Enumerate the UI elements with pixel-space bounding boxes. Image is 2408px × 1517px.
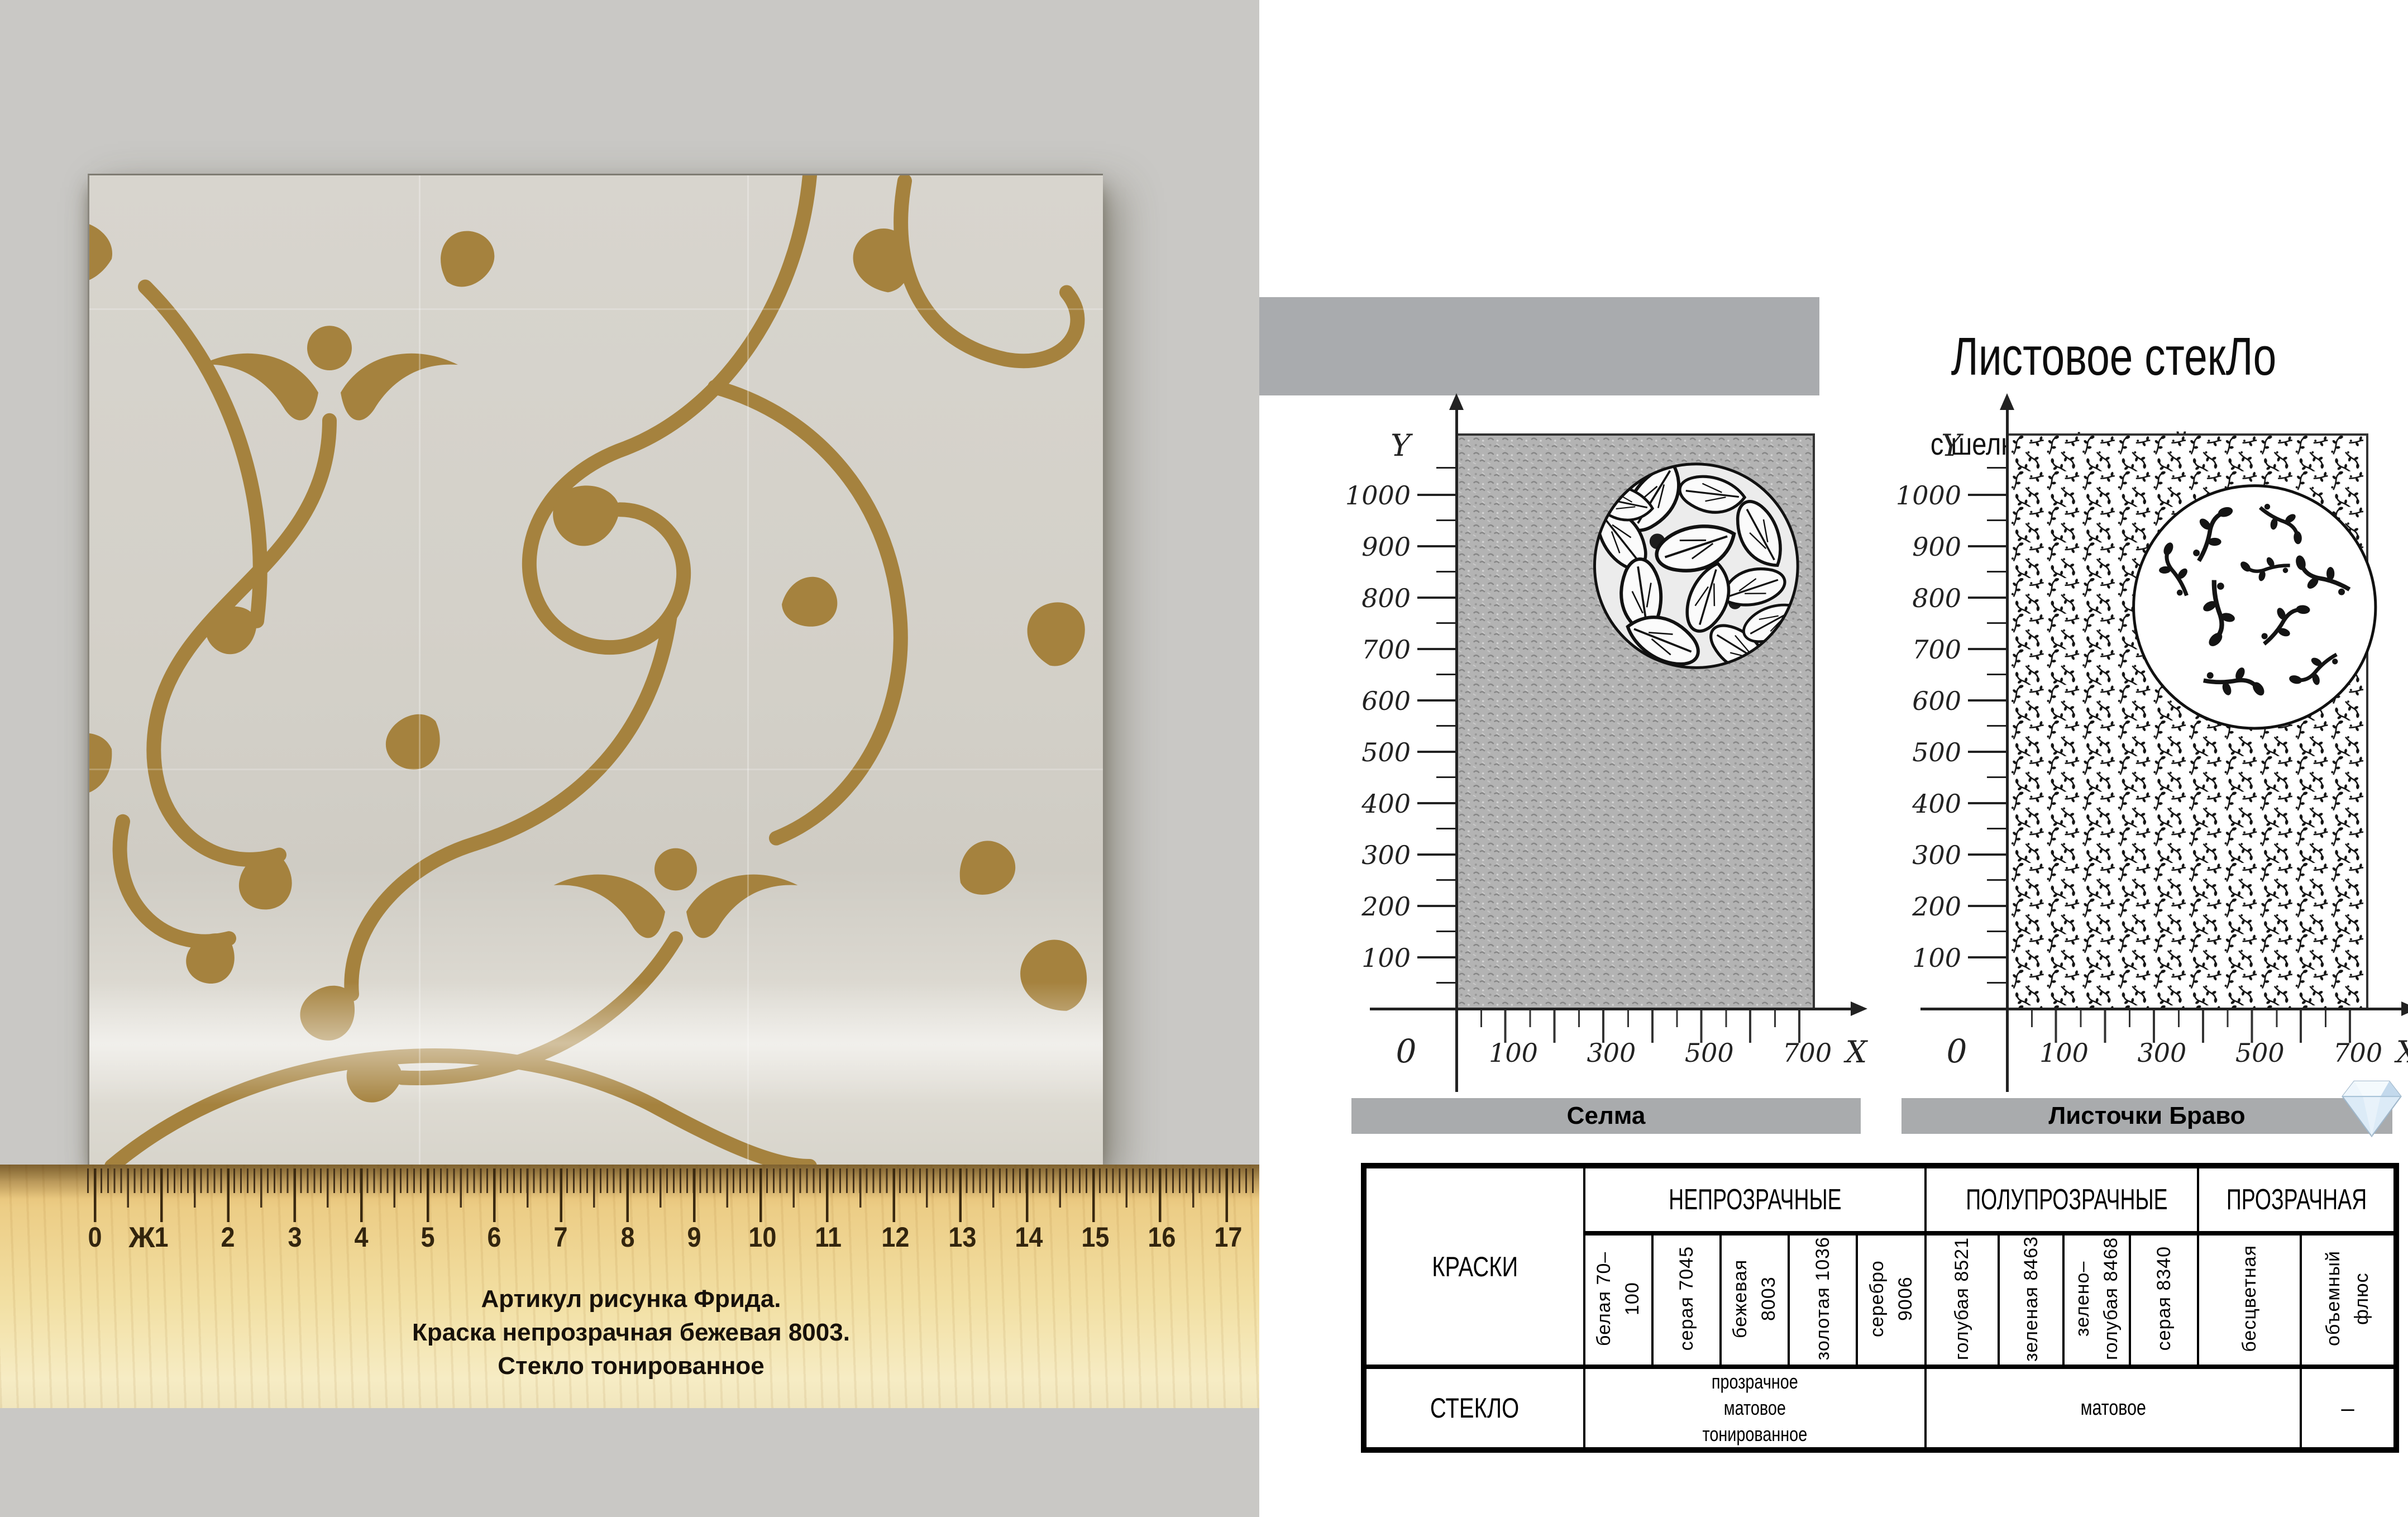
x-axis-label: X [1834, 1034, 1879, 1070]
row-header-glass: СТЕКЛО [1364, 1367, 1584, 1450]
ruler-number: 0 [83, 1221, 107, 1253]
glass-seam [89, 308, 1103, 310]
paint-column: серая 8340 [2130, 1233, 2198, 1367]
y-tick: 600 [1345, 686, 1462, 737]
ruler-number: 13 [948, 1221, 972, 1253]
pattern-name-bar: Селма [1351, 1098, 1861, 1134]
origin-label: 0 [1384, 1032, 1428, 1070]
ruler-number: 6 [482, 1221, 507, 1253]
paints-glass-table: КРАСКИ НЕПРОЗРАЧНЫЕ ПОЛУПРОЗРАЧНЫЕ ПРОЗР… [1361, 1163, 2399, 1453]
header-gray-bar [1259, 297, 1819, 395]
ruler-cm-ticks [94, 1168, 1236, 1222]
y-tick: 500 [1895, 737, 2013, 789]
ruler-number: 10 [748, 1221, 772, 1253]
diamond-icon [2337, 1074, 2407, 1142]
y-tick: 900 [1895, 532, 2013, 583]
y-tick: 300 [1345, 840, 1462, 891]
y-axis [2006, 408, 2009, 1092]
y-tick: 200 [1895, 891, 2013, 943]
ruler-maker-mark: Ж [124, 1221, 160, 1254]
glass-options-semi: матовое [1926, 1367, 2301, 1450]
y-tick: 500 [1345, 737, 1462, 789]
dimension-diagram-selma: Y X 0 1000 900 800 [1345, 391, 1858, 1151]
y-tick: 300 [1895, 840, 2013, 891]
sample-photo-panel: 01234567891011121314151617 Ж Артикул рис… [0, 0, 1259, 1517]
ruler-number: 12 [882, 1221, 906, 1253]
ruler-number: 8 [615, 1221, 639, 1253]
ruler-number: 16 [1148, 1221, 1172, 1253]
caption-line: Артикул рисунка Фрида. [335, 1282, 927, 1316]
caption-line: Краска непрозрачная бежевая 8003. [335, 1316, 927, 1349]
y-axis-label: Y [1918, 428, 1985, 463]
ruler-number: 3 [283, 1221, 307, 1253]
paint-column: объемный флюс [2301, 1233, 2396, 1367]
paint-column: серая 7045 [1652, 1233, 1721, 1367]
paint-column: белая 70–100 [1584, 1233, 1652, 1367]
y-tick: 400 [1895, 789, 2013, 840]
paint-column: зеленая 8463 [1999, 1233, 2063, 1367]
ruler-number: 4 [349, 1221, 373, 1253]
paint-column: бесцветная [2198, 1233, 2301, 1367]
y-tick: 100 [1345, 943, 1462, 994]
group-header-opaque: НЕПРОЗРАЧНЫЕ [1584, 1166, 1926, 1233]
group-header-semitransparent: ПОЛУПРОЗРАЧНЫЕ [1926, 1166, 2198, 1233]
y-tick: 900 [1345, 532, 1462, 583]
y-axis-arrow-icon [1449, 393, 1464, 410]
sample-caption: Артикул рисунка Фрида. Краска непрозрачн… [335, 1282, 927, 1382]
y-tick: 700 [1345, 635, 1462, 686]
glass-options-transparent: – [2301, 1367, 2396, 1450]
group-header-transparent: ПРОЗРАЧНАЯ [2198, 1166, 2396, 1233]
ruler-number: 7 [549, 1221, 573, 1253]
y-tick: 800 [1895, 583, 2013, 635]
pattern-name-bar: Листочки Браво [1901, 1098, 2392, 1134]
paint-column: серебро 9006 [1857, 1233, 1926, 1367]
y-tick: 1000 [1345, 480, 1462, 532]
pattern-fill-selma [1458, 433, 1815, 1009]
ruler-number: 11 [815, 1221, 839, 1253]
x-axis-arrow-icon [1851, 1001, 1867, 1016]
y-minor-tick [1436, 467, 1458, 469]
glass-sample [88, 174, 1103, 1166]
paint-column: голубая 8521 [1926, 1233, 1999, 1367]
ruler-number: 14 [1015, 1221, 1039, 1253]
y-tick: 100 [1895, 943, 2013, 994]
page-title: Листовое стекЛо [1885, 326, 2343, 388]
y-axis [1455, 408, 1458, 1092]
pattern-fill-bravo [2008, 433, 2368, 1009]
x-major-ticks [1458, 1010, 1816, 1043]
paint-column: золотая 1036 [1789, 1233, 1857, 1367]
paint-column: зелено–голубая 8468 [2063, 1233, 2130, 1367]
glass-options-opaque: прозрачное матовое тонированное [1584, 1367, 1926, 1450]
caption-line: Стекло тонированное [335, 1349, 927, 1383]
x-axis-label: X [2385, 1034, 2408, 1070]
y-tick: 200 [1345, 891, 1462, 943]
y-tick: 700 [1895, 635, 2013, 686]
ruler-number: 17 [1215, 1221, 1239, 1253]
glass-seam [89, 769, 1103, 770]
row-header-paints: КРАСКИ [1364, 1166, 1584, 1367]
y-tick: 1000 [1895, 480, 2013, 532]
ruler-number: 9 [682, 1221, 706, 1253]
y-tick: 600 [1895, 686, 2013, 737]
y-minor-tick [1987, 467, 2008, 469]
x-major-ticks [2008, 1010, 2367, 1043]
glass-reflection [89, 982, 1103, 1105]
catalog-page: 01234567891011121314151617 Ж Артикул рис… [0, 0, 2408, 1517]
y-axis-arrow-icon [2000, 393, 2014, 410]
y-tick: 800 [1345, 583, 1462, 635]
y-axis-label: Y [1367, 428, 1434, 463]
ruler-number: 15 [1081, 1221, 1105, 1253]
dimension-diagram-bravo: Y X 0 1000 900 800 [1895, 391, 2408, 1151]
y-tick: 400 [1345, 789, 1462, 840]
ruler-number: 2 [216, 1221, 240, 1253]
ruler-number: 5 [415, 1221, 439, 1253]
x-axis-arrow-icon [2401, 1001, 2408, 1016]
paint-column: бежевая 8003 [1721, 1233, 1789, 1367]
bottom-gray-strip [0, 1408, 1259, 1517]
origin-label: 0 [1934, 1032, 1979, 1070]
